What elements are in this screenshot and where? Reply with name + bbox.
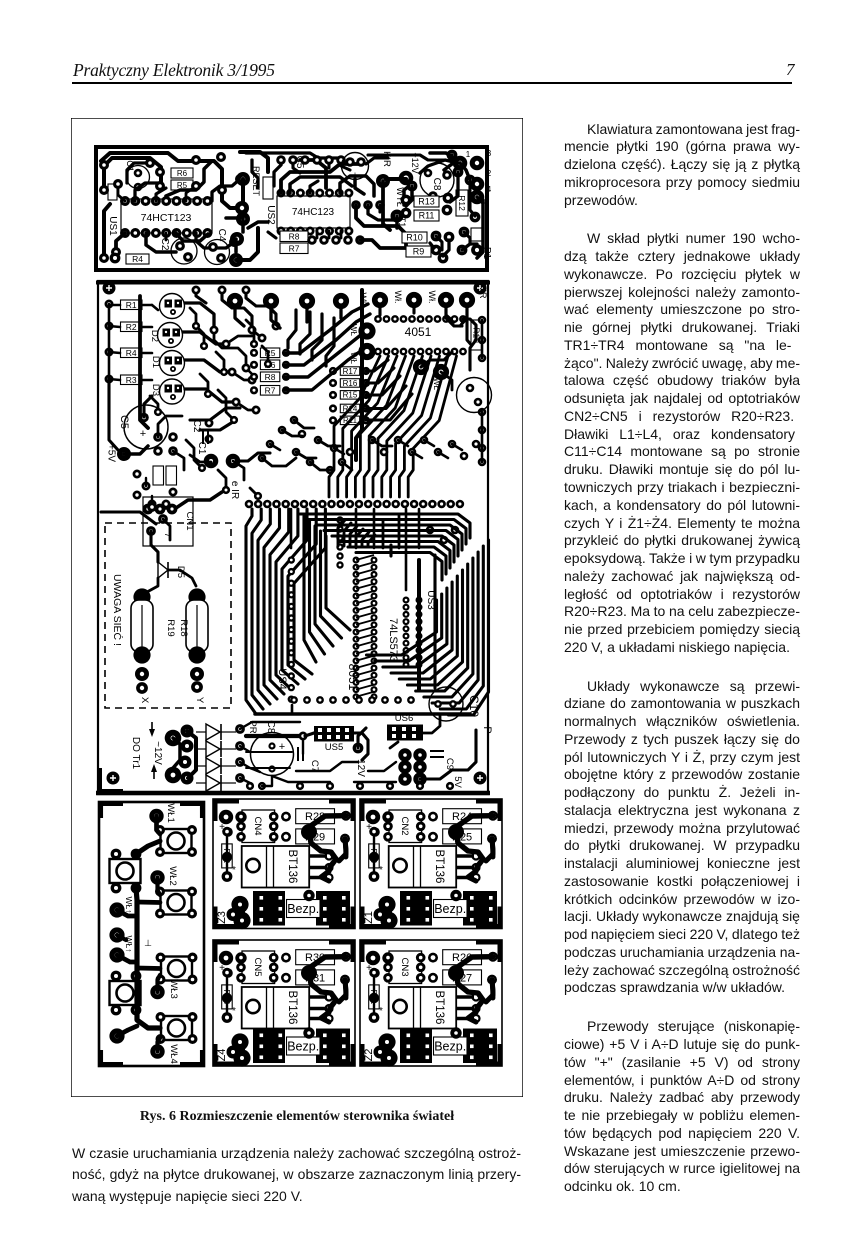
- svg-text:+12V: +12V: [410, 152, 420, 173]
- svg-text:*: *: [232, 1006, 236, 1017]
- svg-text:R8: R8: [289, 231, 300, 241]
- svg-text:⊥: ⊥: [144, 938, 152, 948]
- svg-text:*: *: [379, 1006, 383, 1017]
- svg-text:WŁ2: WŁ2: [167, 866, 178, 886]
- svg-text:Ż3: Ż3: [215, 911, 228, 924]
- svg-text:R19: R19: [165, 619, 176, 636]
- svg-text:74HC123: 74HC123: [292, 207, 335, 218]
- svg-text:Wł.: Wł.: [427, 291, 437, 304]
- svg-text:WŁ3: WŁ3: [168, 979, 179, 999]
- svg-text:8051: 8051: [346, 664, 360, 691]
- svg-text:*: *: [232, 865, 236, 876]
- svg-text:1: 1: [466, 150, 471, 159]
- svg-text:Bezp.: Bezp.: [287, 902, 319, 916]
- svg-text:C10: C10: [467, 695, 481, 717]
- svg-text:CN5: CN5: [252, 957, 263, 976]
- svg-text:D3: D3: [150, 384, 161, 396]
- svg-text:R9: R9: [413, 247, 425, 257]
- svg-text:CN4: CN4: [252, 816, 263, 835]
- svg-text:WŁ1: WŁ1: [165, 803, 176, 823]
- svg-text:2: 2: [487, 169, 492, 178]
- svg-text:74HCT123: 74HCT123: [141, 212, 192, 224]
- svg-text:R1: R1: [126, 300, 137, 310]
- svg-text:WŁ: WŁ: [349, 352, 358, 365]
- svg-text:C2: C2: [191, 420, 202, 433]
- svg-text:BT136: BT136: [286, 850, 298, 884]
- svg-text:Bezp.: Bezp.: [287, 1040, 319, 1054]
- svg-text:R17: R17: [343, 367, 358, 376]
- svg-text:R3: R3: [126, 375, 137, 385]
- svg-text:C9: C9: [444, 758, 455, 770]
- svg-text:R4: R4: [132, 254, 143, 264]
- svg-text:Wł.: Wł.: [393, 291, 403, 304]
- svg-text:US1: US1: [107, 216, 118, 236]
- svg-text:3: 3: [487, 149, 492, 158]
- svg-text:Bezp.: Bezp.: [434, 1040, 466, 1054]
- svg-text:C1: C1: [196, 442, 207, 455]
- svg-text:R2: R2: [126, 322, 137, 332]
- svg-text:US6: US6: [395, 713, 413, 724]
- svg-text:R8: R8: [265, 372, 276, 382]
- svg-text:CN3: CN3: [399, 957, 410, 976]
- svg-text:R11: R11: [419, 211, 435, 221]
- svg-text:C4: C4: [216, 229, 227, 242]
- svg-text:C2: C2: [159, 238, 170, 251]
- svg-text:UWAGA SIEĆ !: UWAGA SIEĆ !: [111, 574, 124, 646]
- svg-text:WŁ: WŁ: [432, 378, 441, 391]
- svg-text:P: P: [481, 726, 493, 733]
- svg-text:C5: C5: [118, 415, 130, 429]
- svg-text:R15: R15: [343, 391, 358, 400]
- svg-text:BT136: BT136: [433, 850, 445, 884]
- svg-text:KIR: KIR: [381, 151, 392, 167]
- svg-text:WŁ↑: WŁ↑: [124, 897, 134, 914]
- svg-text:WŁ: WŁ: [349, 324, 358, 337]
- svg-text:Ż2: Ż2: [362, 1049, 375, 1062]
- svg-text:CN1: CN1: [184, 511, 195, 530]
- svg-text:CN2: CN2: [399, 816, 410, 835]
- svg-text:Y: Y: [194, 697, 205, 704]
- svg-text:R18: R18: [178, 619, 189, 636]
- svg-text:WŁ↑: WŁ↑: [124, 936, 134, 953]
- svg-text:US5: US5: [325, 742, 343, 753]
- svg-text:~12V: ~12V: [152, 741, 163, 765]
- svg-text:D1: D1: [150, 356, 161, 368]
- svg-text:X: X: [139, 697, 150, 704]
- svg-text:Ż1: Ż1: [362, 911, 375, 924]
- svg-text:R7: R7: [265, 385, 276, 395]
- svg-text:e IR: e IR: [229, 481, 240, 499]
- svg-text:R6: R6: [177, 169, 188, 178]
- svg-text:US4: US4: [276, 668, 288, 689]
- svg-text:R10: R10: [406, 233, 423, 243]
- svg-text:R4: R4: [126, 348, 137, 358]
- svg-text:C8: C8: [431, 178, 442, 191]
- svg-text:4051: 4051: [405, 325, 432, 339]
- svg-text:4: 4: [487, 185, 492, 194]
- svg-text:BT136: BT136: [286, 991, 298, 1025]
- svg-text:KIR: KIR: [478, 283, 488, 299]
- svg-text:R13: R13: [418, 197, 435, 207]
- svg-text:D2: D2: [149, 330, 160, 342]
- svg-text:*: *: [379, 865, 383, 876]
- svg-text:WŁ4: WŁ4: [168, 1044, 179, 1064]
- svg-text:R16: R16: [343, 379, 358, 388]
- svg-text:DO Tr1: DO Tr1: [130, 737, 141, 770]
- svg-text:+: +: [140, 428, 146, 440]
- svg-text:BT136: BT136: [433, 991, 445, 1025]
- svg-text:Bezp.: Bezp.: [434, 902, 466, 916]
- svg-text:US2: US2: [265, 205, 276, 225]
- svg-text:R7: R7: [289, 243, 300, 253]
- svg-text:Ż4: Ż4: [215, 1049, 228, 1062]
